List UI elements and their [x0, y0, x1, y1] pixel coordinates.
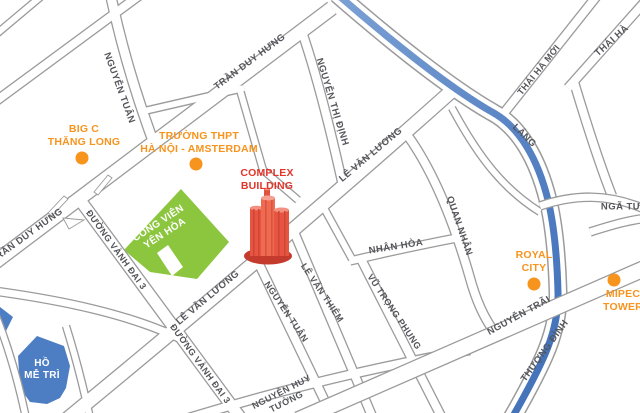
building-tower-right	[274, 210, 289, 256]
building-stripe-3	[265, 200, 267, 256]
building-stripe-1	[253, 209, 255, 256]
road-corner-nw-casing	[0, 0, 44, 36]
building-tower-mid	[261, 198, 275, 256]
building-tower-right-cap	[274, 208, 289, 213]
building-stripe-6	[284, 211, 286, 256]
building-antenna-cap	[264, 188, 270, 190]
road-nhan-hoa	[350, 237, 462, 261]
building-stripe-4	[271, 200, 273, 256]
bridge-road-fill-layer	[298, 197, 640, 413]
poi-dot-mipec-tower[interactable]	[608, 274, 621, 287]
me-tri-lake	[18, 336, 70, 404]
poi-dot-big-c-thang-long[interactable]	[76, 152, 89, 165]
building-stripe-2	[258, 209, 260, 256]
road-nhan-hoa-connector	[324, 208, 352, 259]
building-tower-mid-cap	[261, 196, 275, 201]
road-nguyen-tuan-top	[110, 0, 152, 138]
poi-dot-royal-city[interactable]	[528, 278, 541, 291]
complex-building-icon[interactable]	[244, 188, 292, 265]
bridge-road-casing-layer	[298, 197, 640, 413]
building-stripe-5	[278, 211, 280, 256]
poi-dot-truong-thpt-ha-noi-amsterdam[interactable]	[190, 158, 203, 171]
map-canvas: COMPLEX BUILDING CÔNG VIÊN YÊN HÒA HỒ MỄ…	[0, 0, 640, 413]
ramp-island-3	[63, 218, 84, 229]
road-nguyen-thi-dinh	[301, 29, 343, 186]
road-tay-son	[574, 82, 612, 196]
map-geometry	[0, 0, 640, 413]
road-block-school-east	[240, 90, 263, 170]
